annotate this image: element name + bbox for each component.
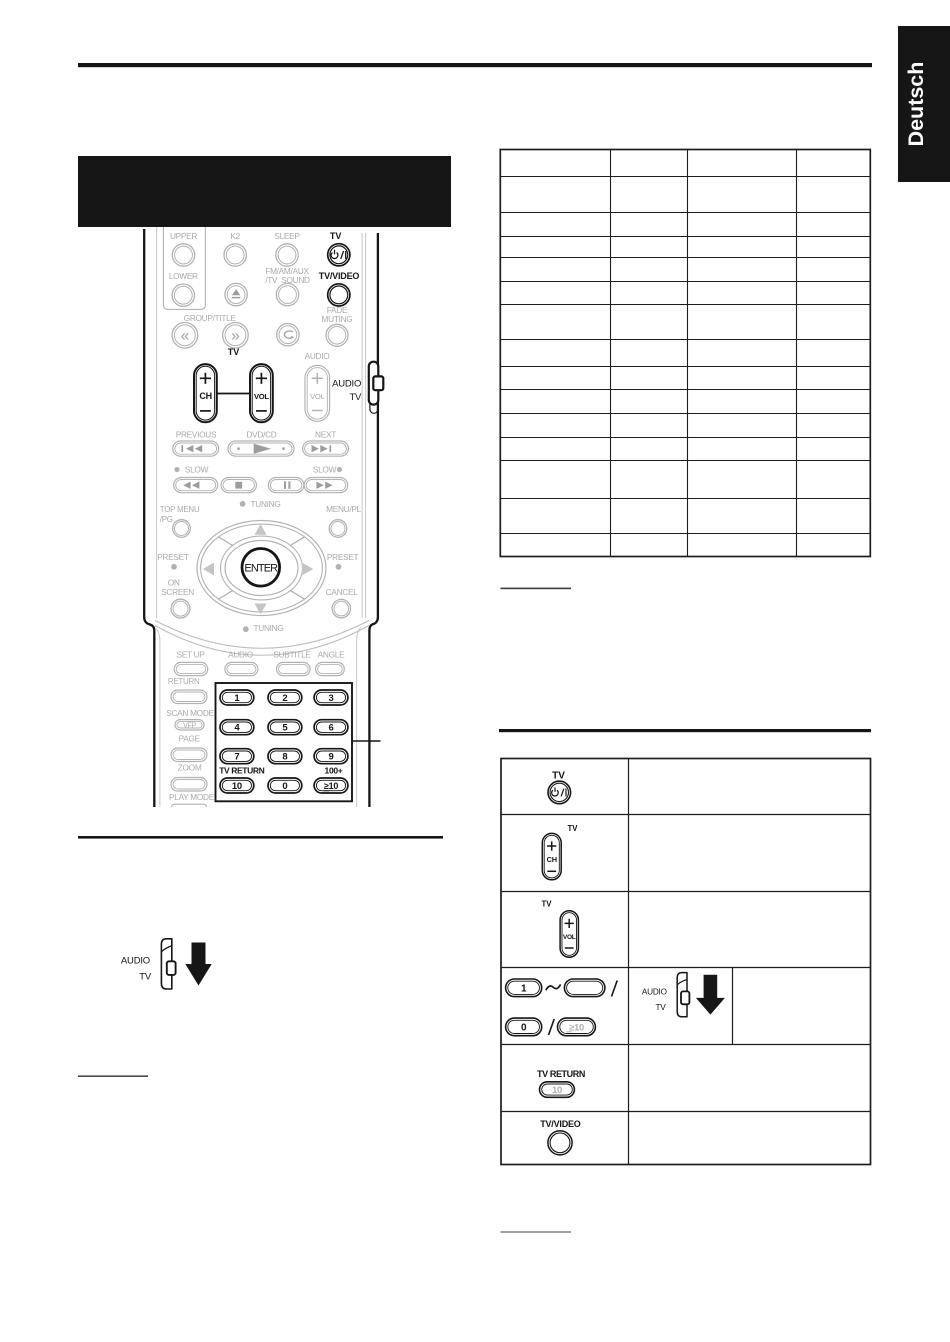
svg-text:≥10: ≥10 xyxy=(324,781,338,791)
svg-text:AUDIO: AUDIO xyxy=(332,379,361,390)
svg-text:CH: CH xyxy=(199,391,211,401)
svg-text:»: » xyxy=(231,328,240,345)
svg-text:GROUP/TITLE: GROUP/TITLE xyxy=(184,313,237,323)
svg-text:6: 6 xyxy=(329,723,334,734)
svg-text:K2: K2 xyxy=(230,231,240,241)
svg-text:TV/VIDEO: TV/VIDEO xyxy=(319,271,360,281)
svg-text:3: 3 xyxy=(329,693,334,704)
svg-text:VFP: VFP xyxy=(183,723,196,730)
svg-text:TOP MENU: TOP MENU xyxy=(160,505,200,514)
svg-text:10: 10 xyxy=(232,781,242,792)
svg-text:CANCEL: CANCEL xyxy=(326,587,359,597)
svg-text:DVD/CD: DVD/CD xyxy=(246,429,276,439)
svg-text:PLAY MODE: PLAY MODE xyxy=(169,792,215,802)
svg-text:2: 2 xyxy=(282,693,287,704)
svg-text:RETURN: RETURN xyxy=(168,677,200,686)
svg-text:NEXT: NEXT xyxy=(315,429,336,439)
svg-text:PAGE: PAGE xyxy=(179,733,201,743)
svg-text:/PG: /PG xyxy=(160,515,173,524)
svg-text:TV: TV xyxy=(568,824,579,833)
svg-text:TUNING: TUNING xyxy=(253,623,283,633)
svg-text:AUDIO: AUDIO xyxy=(228,650,254,660)
svg-text:CH: CH xyxy=(547,855,557,864)
svg-text:AUDIO: AUDIO xyxy=(305,351,331,361)
svg-text:PRESET: PRESET xyxy=(157,552,189,562)
svg-text:AUDIO: AUDIO xyxy=(642,988,667,997)
svg-text:9: 9 xyxy=(329,752,334,763)
svg-text:10: 10 xyxy=(552,1085,562,1096)
svg-text:SLEEP: SLEEP xyxy=(274,231,300,241)
svg-text:SLOW: SLOW xyxy=(185,465,209,475)
svg-text:ANGLE: ANGLE xyxy=(318,650,345,660)
svg-text:TV RETURN: TV RETURN xyxy=(219,765,264,775)
svg-text:TUNING: TUNING xyxy=(250,499,280,509)
svg-text:100+: 100+ xyxy=(325,765,343,775)
svg-text:SCREEN: SCREEN xyxy=(161,587,194,597)
svg-text:TV: TV xyxy=(542,899,553,908)
svg-text:MUTING: MUTING xyxy=(322,314,353,324)
svg-text:PREVIOUS: PREVIOUS xyxy=(176,429,217,439)
svg-text:VOL: VOL xyxy=(310,392,324,401)
svg-text:TV: TV xyxy=(330,231,342,241)
svg-text:PRESET: PRESET xyxy=(327,552,359,562)
svg-text:TV: TV xyxy=(552,771,565,782)
svg-text:MENU/PL: MENU/PL xyxy=(326,504,361,514)
svg-text:«: « xyxy=(181,328,190,345)
svg-text:LOWER: LOWER xyxy=(169,271,198,281)
svg-text:AUDIO: AUDIO xyxy=(121,956,150,967)
svg-text:VOL: VOL xyxy=(563,934,576,941)
svg-text:1: 1 xyxy=(521,983,527,994)
svg-text:TV/VIDEO: TV/VIDEO xyxy=(540,1119,581,1129)
svg-text:TV: TV xyxy=(139,972,152,983)
svg-text:SLOW: SLOW xyxy=(313,465,337,475)
svg-text:VOL: VOL xyxy=(254,392,269,401)
svg-text:TV: TV xyxy=(655,1003,666,1012)
svg-text:8: 8 xyxy=(282,752,287,763)
svg-text:ZOOM: ZOOM xyxy=(178,763,202,773)
svg-text:Deutsch: Deutsch xyxy=(904,62,928,147)
svg-text:ENTER: ENTER xyxy=(244,562,278,574)
svg-text:SET UP: SET UP xyxy=(176,650,205,660)
svg-text:0: 0 xyxy=(521,1022,527,1033)
svg-text:7: 7 xyxy=(234,752,239,763)
svg-text:TV RETURN: TV RETURN xyxy=(537,1069,585,1079)
svg-text:UPPER: UPPER xyxy=(170,231,197,241)
svg-text:0: 0 xyxy=(282,781,287,792)
svg-text:TV: TV xyxy=(228,347,240,357)
svg-text:SUBTITLE: SUBTITLE xyxy=(273,650,311,660)
svg-text:SCAN MODE: SCAN MODE xyxy=(166,708,214,718)
svg-text:TV: TV xyxy=(349,392,362,403)
